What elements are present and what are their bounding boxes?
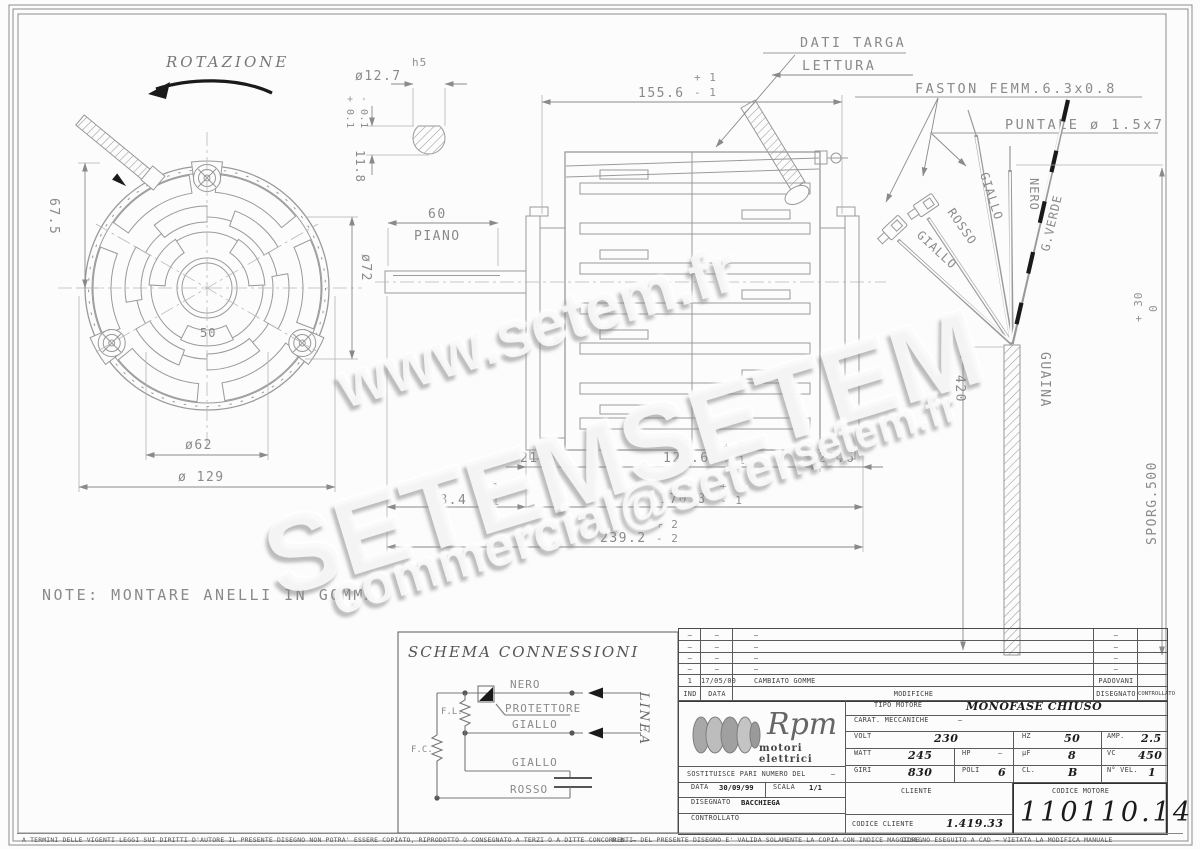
vc-value: 450 bbox=[1138, 749, 1162, 762]
side-cable bbox=[741, 100, 805, 190]
uf-value: 8 bbox=[1068, 749, 1076, 762]
carat-value: – bbox=[958, 716, 962, 724]
rotation-arrow bbox=[156, 81, 272, 93]
rev-date: – bbox=[701, 654, 733, 662]
tipo-motore-value: MONOFASE CHIUSO bbox=[966, 700, 1102, 713]
drawing-sheet: ROTAZIONE 67.5 ø72 50 ø6 bbox=[0, 0, 1200, 849]
rotazione-label: ROTAZIONE bbox=[165, 53, 289, 71]
dim-239-2-tol-minus: - 2 bbox=[656, 532, 679, 545]
guaina-label: GUAINA bbox=[1037, 352, 1052, 408]
lettura-label: LETTURA bbox=[802, 58, 876, 74]
controllato-label: CONTROLLATO bbox=[691, 814, 739, 822]
dim-127-6: 127.6 bbox=[663, 451, 710, 466]
rev-header-ind: IND bbox=[679, 690, 701, 698]
dim-67-5: 67.5 bbox=[46, 198, 61, 235]
dim-127-6-tol-minus: - 1 bbox=[723, 454, 746, 467]
hz-label: HZ bbox=[1022, 732, 1031, 740]
codice-cliente-value: 1.419.33 bbox=[946, 817, 1004, 830]
rev-by: – bbox=[1094, 643, 1138, 651]
puntale-label: PUNTALE ø 1.5x7 bbox=[1005, 117, 1164, 133]
codice-motore-label: CODICE MOTORE bbox=[1052, 787, 1109, 795]
dim-155-6-tol-plus: + 1 bbox=[694, 71, 717, 84]
rev-desc: – bbox=[754, 665, 854, 673]
schema-giallo2-label: GIALLO bbox=[512, 756, 558, 769]
cliente-label: CLIENTE bbox=[901, 787, 932, 795]
giri-label: GIRI bbox=[854, 766, 872, 774]
sostituisce-value: – bbox=[831, 766, 835, 783]
rev-desc: – bbox=[754, 654, 854, 662]
dim-170-8-tol-minus: - 1 bbox=[720, 494, 743, 507]
dim-11-8-tol-minus: - 0.1 bbox=[358, 96, 369, 129]
dim-239-2: 239.2 bbox=[600, 531, 647, 546]
sostituisce-row: SOSTITUISCE PARI NUMERO DEL – bbox=[679, 766, 846, 783]
title-block: – – – – – – – – – – – – – – – – 1 17/05/… bbox=[678, 628, 1168, 835]
hp-value: – bbox=[998, 749, 1002, 757]
poli-label: POLI bbox=[962, 766, 980, 774]
schema-nero-label: NERO bbox=[510, 678, 541, 691]
carat-label: CARAT. MECCANICHE bbox=[854, 716, 929, 724]
rev-header-disegnato: DISEGNATO bbox=[1094, 690, 1138, 698]
rev-entry-by: PADOVANI bbox=[1094, 677, 1138, 685]
dim-60: 60 bbox=[428, 207, 447, 222]
side-view-dimensions: 155.6 + 1 - 1 60 PIANO 21.6 127.6 + 1 - … bbox=[387, 71, 883, 552]
dati-targa-label: DATI TARGA bbox=[800, 35, 906, 51]
schema-fc-label: F.C. bbox=[411, 745, 433, 755]
rev-date: – bbox=[701, 631, 733, 639]
dim-155-6-tol-minus: - 1 bbox=[694, 86, 717, 99]
rev-desc: – bbox=[754, 643, 854, 651]
cl-value: B bbox=[1068, 766, 1078, 779]
schema-giallo1-label: GIALLO bbox=[512, 718, 558, 731]
giri-value: 830 bbox=[908, 766, 932, 779]
amp-value: 2.5 bbox=[1141, 732, 1162, 745]
footer-right-1: N.B. – DEL PRESENTE DISEGNO E' VALIDA SO… bbox=[612, 836, 924, 844]
rpm-logo-name: Rpm bbox=[767, 707, 837, 742]
footer-left: A TERMINI DELLE VIGENTI LEGGI SUI DIRITT… bbox=[22, 836, 637, 844]
dim-68-4-tol-minus: - 1 bbox=[477, 495, 500, 508]
nvel-label: N° VEL. bbox=[1107, 766, 1138, 774]
dim-68-4-tol-plus: + 1 bbox=[477, 481, 500, 494]
wire-fan: GIALLO ROSSO GIALLO NERO G.VERDE GUAINA … bbox=[875, 100, 1163, 655]
dim-50: 50 bbox=[200, 326, 216, 340]
schema-protettore-label: PROTETTORE bbox=[505, 702, 581, 715]
dim-21-6-right: 21.6 bbox=[818, 451, 855, 466]
front-view-dimensions: 67.5 ø72 50 ø62 ø 129 bbox=[46, 163, 373, 492]
nvel-value: 1 bbox=[1148, 766, 1156, 779]
dim-sporg-tol-plus: + 30 bbox=[1132, 292, 1145, 323]
codice-cliente-label: CODICE CLIENTE bbox=[852, 820, 914, 828]
dim-170-8-tol-plus: + 1 bbox=[720, 480, 743, 493]
scala-value: 1/1 bbox=[809, 783, 822, 792]
uf-label: µF bbox=[1022, 749, 1031, 757]
disegnato-value: BACCHIEGA bbox=[741, 798, 780, 807]
watt-label: WATT bbox=[854, 749, 872, 757]
rpm-logo-tagline: motori elettrici bbox=[759, 743, 839, 765]
dim-d129: ø 129 bbox=[178, 470, 225, 485]
rev-entry-ind: 1 bbox=[679, 677, 701, 685]
rev-entry-desc: CAMBIATO GOMME bbox=[754, 677, 954, 685]
side-view bbox=[375, 100, 886, 459]
note-text: NOTE: MONTARE ANELLI IN GOMMA bbox=[42, 586, 376, 604]
rev-by: – bbox=[1094, 654, 1138, 662]
sostituisce-label: SOSTITUISCE PARI NUMERO DEL bbox=[687, 770, 806, 778]
dim-11-8: 11.8 bbox=[353, 150, 367, 183]
wire-nero-label: NERO bbox=[1027, 178, 1041, 211]
dim-60-piano: PIANO bbox=[414, 229, 461, 244]
rev-date: – bbox=[701, 665, 733, 673]
watt-value: 245 bbox=[908, 749, 932, 762]
keyway-detail: ø12.7 h5 11.8 + 0.1 - 0.1 bbox=[344, 56, 467, 183]
scala-label: SCALA bbox=[773, 783, 795, 791]
dim-155-6: 155.6 bbox=[638, 86, 685, 101]
rev-ind: – bbox=[679, 643, 701, 651]
schema-fl-label: F.L. bbox=[441, 707, 463, 717]
dim-68-4: 68.4 bbox=[430, 493, 467, 508]
rev-ind: – bbox=[679, 631, 701, 639]
rpm-motor-icon bbox=[689, 713, 763, 757]
rotation-annotation: ROTAZIONE bbox=[148, 53, 289, 99]
faston-label: FASTON FEMM.6.3x0.8 bbox=[915, 81, 1117, 97]
front-view bbox=[58, 115, 362, 448]
front-cable bbox=[76, 115, 152, 181]
schema-title: SCHEMA CONNESSIONI bbox=[408, 643, 639, 661]
keyway-fit: h5 bbox=[412, 56, 427, 69]
codice-motore-value: 110110.14 bbox=[1020, 797, 1193, 828]
volt-value: 230 bbox=[934, 732, 958, 745]
footer-right-2: DISEGNO ESEGUITO A CAD – VIETATA LA MODI… bbox=[902, 836, 1112, 844]
poli-value: 6 bbox=[998, 766, 1006, 779]
rev-entry-date: 17/05/00 bbox=[701, 677, 733, 685]
rev-header-modifiche: MODIFICHE bbox=[733, 690, 1094, 698]
hz-value: 50 bbox=[1064, 732, 1080, 745]
dim-sporg-tol-minus: 0 bbox=[1147, 304, 1160, 312]
rev-date: – bbox=[701, 643, 733, 651]
faston-connector bbox=[875, 215, 907, 246]
rev-header-controllato: CONTROLLATO bbox=[1138, 691, 1167, 697]
dim-d62: ø62 bbox=[185, 438, 213, 453]
wire-gverde-label: G.VERDE bbox=[1038, 193, 1065, 252]
rpm-logo: Rpm motori elettrici bbox=[689, 711, 839, 763]
dim-127-6-tol-plus: + 1 bbox=[723, 440, 746, 453]
schema-rosso-label: ROSSO bbox=[510, 783, 548, 796]
rev-header-date: DATA bbox=[701, 690, 733, 698]
dim-d12-7: ø12.7 bbox=[355, 69, 402, 84]
dim-sporg: SPORG.500 bbox=[1145, 461, 1160, 545]
volt-label: VOLT bbox=[854, 732, 872, 740]
data-label: DATA bbox=[691, 783, 709, 791]
rev-desc: – bbox=[754, 631, 854, 639]
footer-strip: A TERMINI DELLE VIGENTI LEGGI SUI DIRITT… bbox=[17, 833, 1183, 847]
amp-label: AMP. bbox=[1107, 732, 1125, 740]
vc-label: VC bbox=[1107, 749, 1116, 757]
dim-21-6-left: 21.6 bbox=[520, 451, 557, 466]
rev-by: – bbox=[1094, 665, 1138, 673]
wire-rosso-label: ROSSO bbox=[945, 206, 980, 248]
dim-170-8: 170.8 bbox=[660, 492, 707, 507]
data-value: 30/09/99 bbox=[719, 783, 754, 792]
guaina-sheath bbox=[1004, 345, 1020, 655]
rev-by: – bbox=[1094, 631, 1138, 639]
disegnato-label: DISEGNATO bbox=[691, 798, 731, 806]
wire-giallo2-label: GIALLO bbox=[977, 171, 1006, 222]
dim-239-2-tol-plus: + 2 bbox=[656, 518, 679, 531]
wire-giallo1-label: GIALLO bbox=[914, 228, 960, 272]
tipo-motore-label: TIPO MOTORE bbox=[874, 701, 922, 709]
dim-11-8-tol-plus: + 0.1 bbox=[344, 96, 355, 129]
schema-connessioni: SCHEMA CONNESSIONI NERO PROTETTORE GIALL… bbox=[398, 632, 678, 833]
codice-motore-box: CODICE MOTORE 110110.14 bbox=[1013, 783, 1167, 834]
dim-d72: ø72 bbox=[358, 254, 373, 282]
faston-connector bbox=[906, 193, 940, 222]
hp-label: HP bbox=[962, 749, 971, 757]
rev-ind: – bbox=[679, 665, 701, 673]
cl-label: CL. bbox=[1022, 766, 1035, 774]
rev-ind: – bbox=[679, 654, 701, 662]
schema-linea-label: LINEA bbox=[636, 691, 651, 746]
dim-420: 420 bbox=[952, 375, 967, 403]
